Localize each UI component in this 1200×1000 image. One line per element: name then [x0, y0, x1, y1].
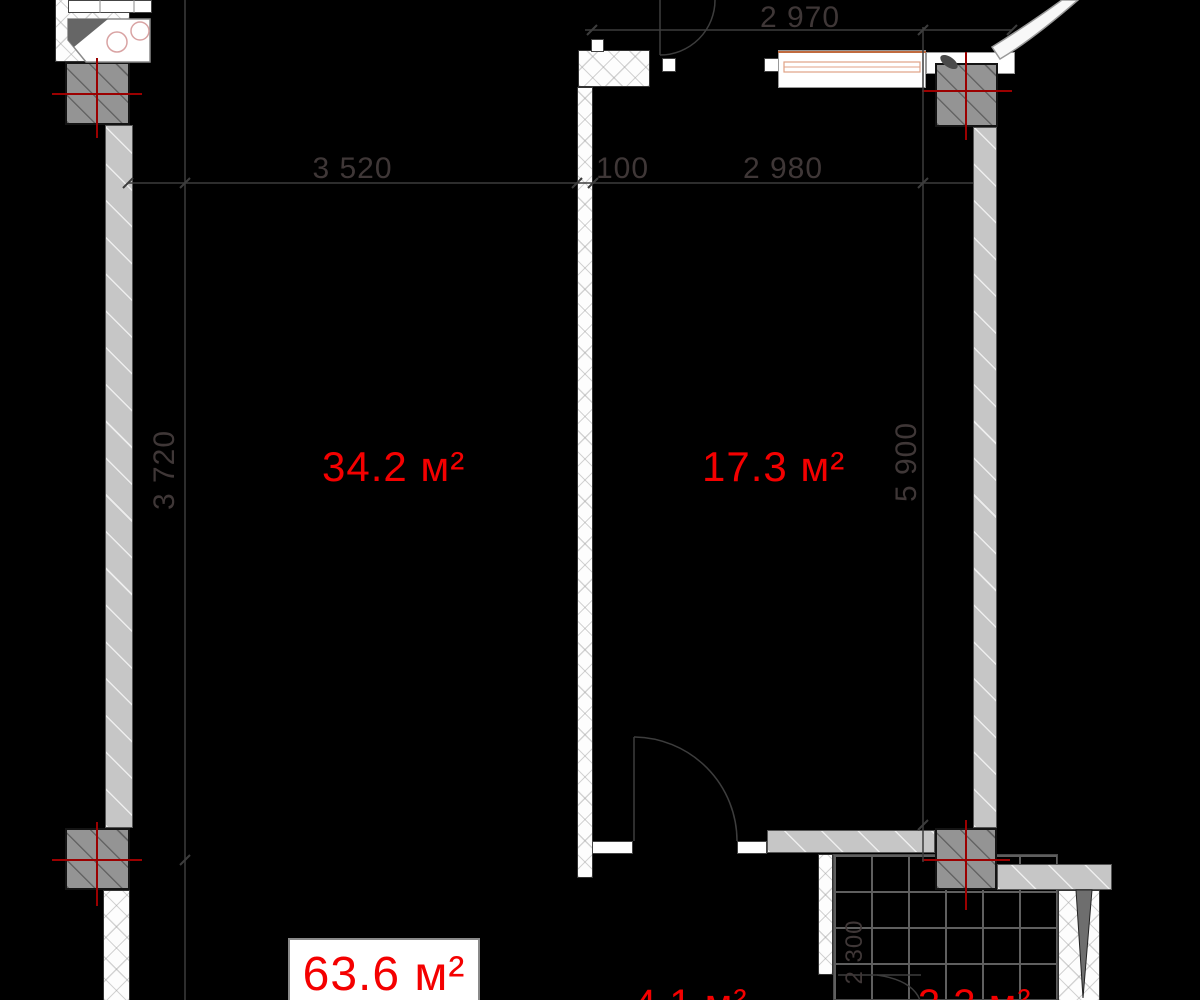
room-label-hallway: 4.1 м² [634, 982, 748, 1000]
total-area-box: 63.6 м² [288, 938, 480, 1000]
room-label-bathroom: 3.3 м² [918, 982, 1032, 1000]
window-glazing [778, 52, 926, 72]
door-arc-bedroom [634, 737, 737, 841]
column-centerlines [52, 52, 1012, 910]
doors [634, 0, 921, 1000]
dim-height-left: 3 720 [148, 420, 178, 520]
door-arc-bathroom [877, 975, 920, 1000]
door-stop-symbol [938, 52, 960, 72]
room-label-bedroom: 17.3 м² [702, 443, 845, 491]
dim-wall-thickness: 100 [596, 152, 644, 186]
room-label-living: 34.2 м² [322, 443, 465, 491]
dim-width-right: 2 980 [733, 152, 833, 186]
floor-plan-canvas: 2 970 3 520 100 2 980 3 720 5 900 2 300 … [0, 0, 1200, 1000]
sink-fixture [68, 0, 150, 62]
dim-width-left: 3 520 [300, 152, 405, 186]
dimension-lines [128, 0, 1012, 1000]
door-leaf-bathroom-right [1076, 890, 1092, 998]
dim-height-right: 5 900 [890, 412, 920, 512]
total-area-label: 63.6 м² [303, 947, 466, 1000]
door-arc-top [660, 0, 715, 55]
dim-bathroom-width: 2 300 [841, 912, 865, 992]
dim-top-width: 2 970 [740, 1, 860, 35]
dimension-ticks [123, 25, 1017, 865]
